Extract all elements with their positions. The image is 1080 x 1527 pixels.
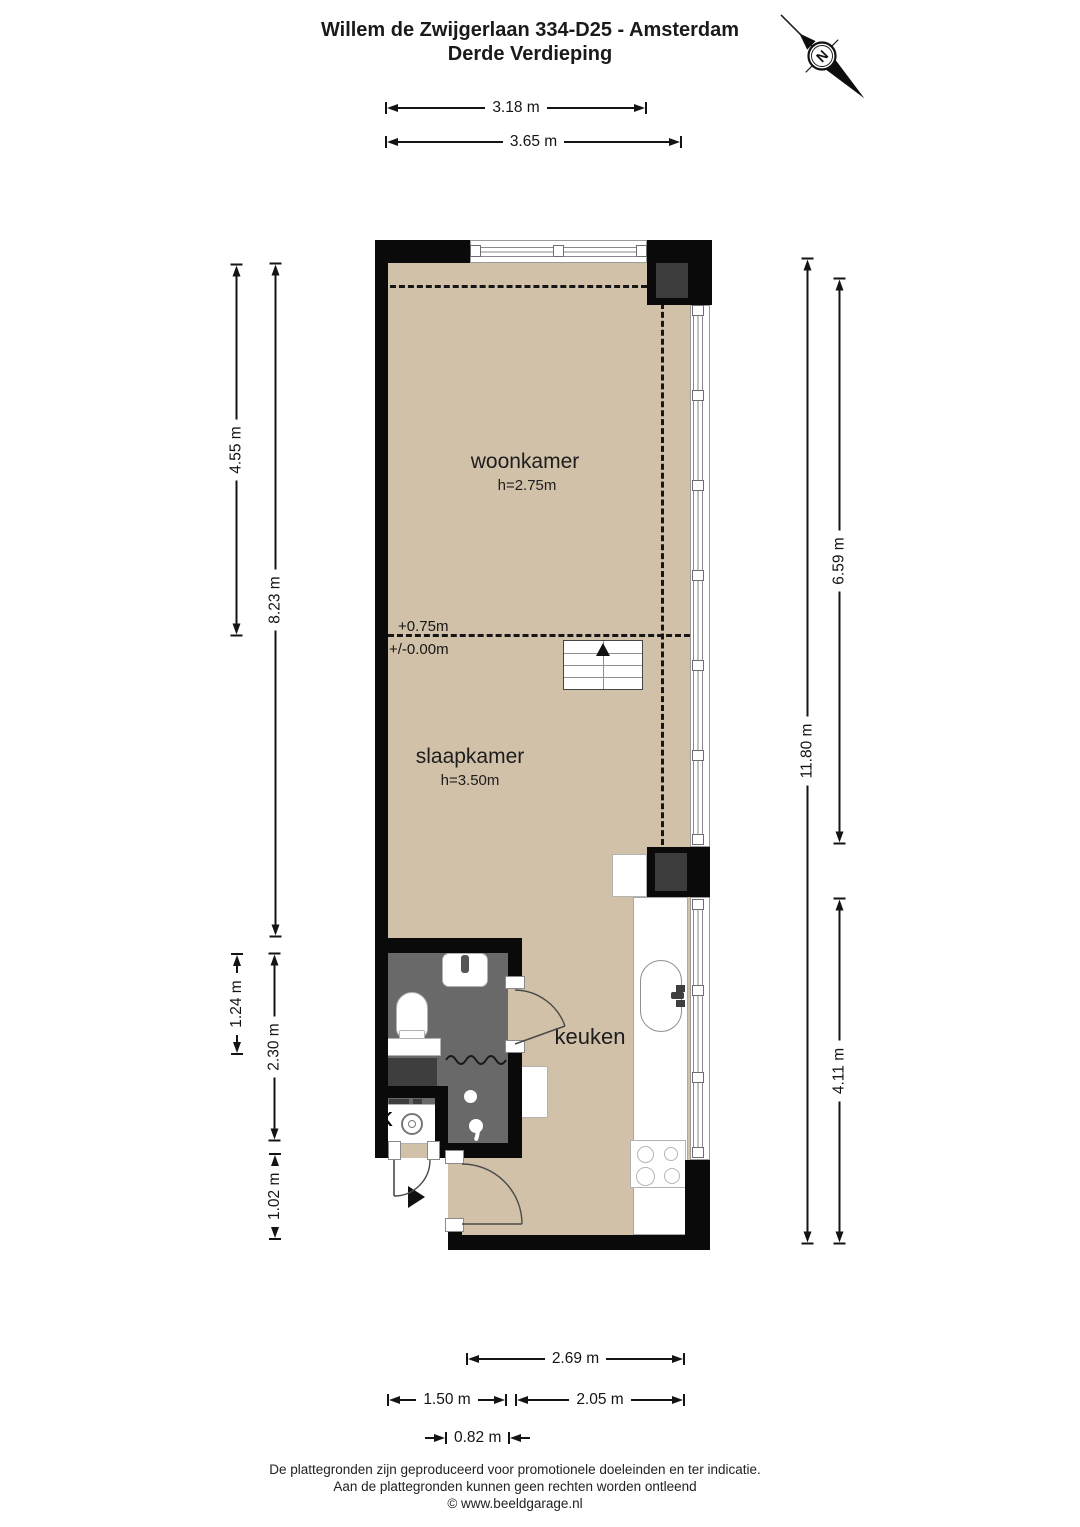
door-arcs-overlay <box>0 0 1080 1527</box>
dimension-bottom-door: 0.82 m <box>425 1428 526 1448</box>
entrance-door-arc <box>462 1164 522 1224</box>
dimension-left-total-upper: 8.23 m <box>266 263 286 938</box>
footer-disclaimer: De plattegronden zijn geproduceerd voor … <box>115 1461 915 1512</box>
dimension-bottom-kitchen: 2.69 m <box>466 1349 685 1369</box>
dimension-left-bathroom: 1.24 m <box>227 953 247 1055</box>
footer-line-1: De plattegronden zijn geproduceerd voor … <box>115 1461 915 1478</box>
dimension-right-kitchen: 4.11 m <box>830 898 850 1245</box>
bathroom-door-arc <box>515 990 565 1026</box>
footer-line-3: © www.beeldgarage.nl <box>115 1495 915 1512</box>
dimension-bottom-left: 1.50 m <box>387 1390 507 1410</box>
floorplan-page: Willem de Zwijgerlaan 334-D25 - Amsterda… <box>0 0 1080 1527</box>
dimension-right-upper: 6.59 m <box>830 278 850 845</box>
dimension-top-outer: 3.65 m <box>385 132 682 152</box>
dimension-top-inner: 3.18 m <box>385 98 647 118</box>
dimension-left-entrance: 1.02 m <box>265 1156 285 1240</box>
dimension-right-total: 11.80 m <box>798 258 818 1245</box>
dimension-left-bath-block: 2.30 m <box>265 953 285 1142</box>
dimension-bottom-right: 2.05 m <box>515 1390 685 1410</box>
closet-door-arc <box>394 1160 430 1196</box>
dimension-left-woonkamer: 4.55 m <box>227 264 247 637</box>
footer-line-2: Aan de plattegronden kunnen geen rechten… <box>115 1478 915 1495</box>
bathroom-door-leaf <box>515 1026 565 1044</box>
shower-curtain-line <box>446 1056 506 1064</box>
